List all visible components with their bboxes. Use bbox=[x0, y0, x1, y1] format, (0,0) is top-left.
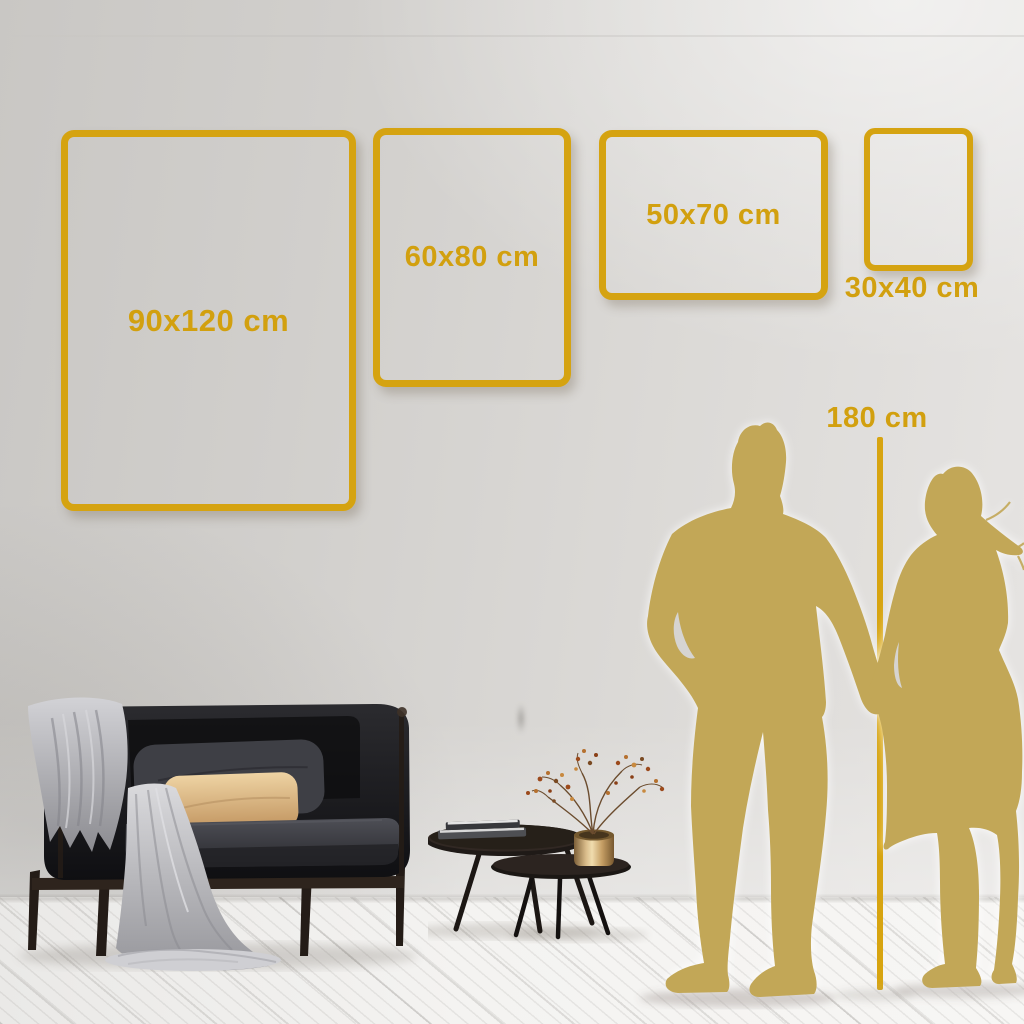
size-frame-30x40 bbox=[864, 128, 973, 271]
book-stack bbox=[438, 819, 527, 839]
sofa-illustration bbox=[8, 658, 428, 978]
size-guide-mockup: 90x120 cm 60x80 cm 50x70 cm 30x40 cm 180… bbox=[0, 0, 1024, 1024]
size-frame-label-30x40: 30x40 cm bbox=[827, 272, 997, 305]
size-frame-60x80: 60x80 cm bbox=[373, 128, 571, 387]
size-frame-label: 60x80 cm bbox=[405, 241, 540, 274]
wall-smudge-mark bbox=[516, 703, 526, 734]
size-frame-90x120: 90x120 cm bbox=[61, 130, 356, 511]
size-frame-50x70: 50x70 cm bbox=[599, 130, 828, 300]
size-frame-label: 90x120 cm bbox=[128, 303, 289, 339]
man-silhouette bbox=[647, 423, 888, 997]
woman-silhouette bbox=[869, 467, 1023, 988]
ceiling-seam-line bbox=[0, 35, 1024, 37]
brass-vase bbox=[574, 830, 614, 867]
couple-silhouettes bbox=[620, 420, 1024, 1014]
throw-blanket-on-arm bbox=[28, 698, 128, 853]
size-frame-label: 50x70 cm bbox=[646, 199, 781, 232]
